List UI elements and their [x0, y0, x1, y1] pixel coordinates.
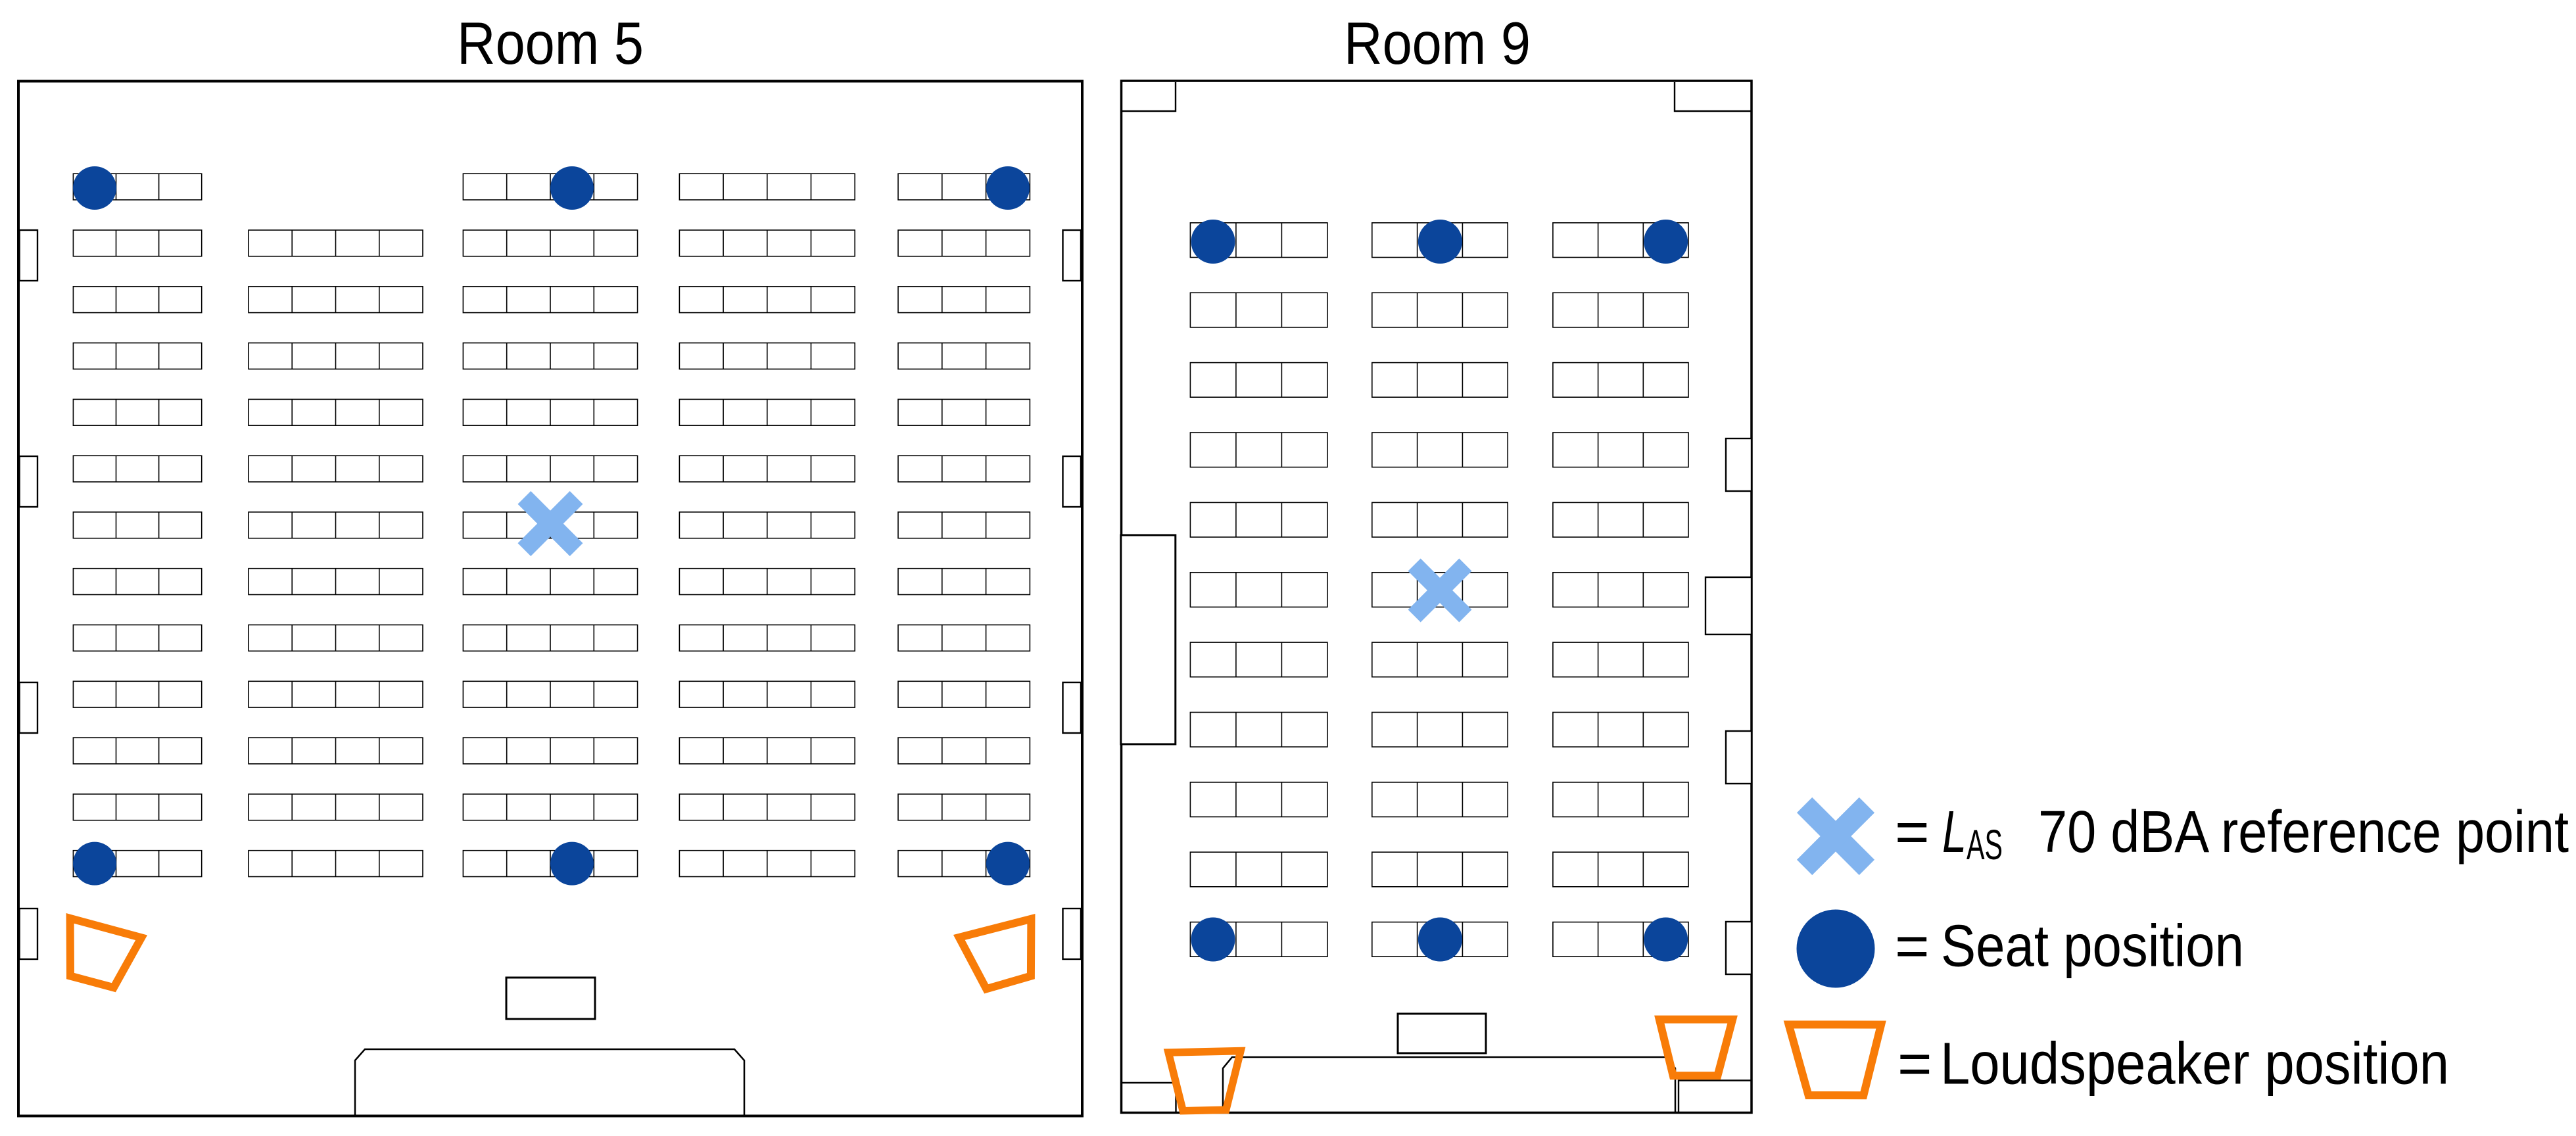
svg-text:70 dBA reference point: 70 dBA reference point [2038, 799, 2569, 865]
svg-text:L: L [1942, 799, 1967, 865]
svg-text:Seat position: Seat position [1941, 914, 2244, 980]
svg-text:AS: AS [1967, 821, 2003, 868]
svg-text:=: = [1895, 799, 1930, 865]
svg-text:Room 5: Room 5 [457, 11, 644, 77]
svg-text:=: = [1895, 914, 1930, 980]
svg-text:Loudspeaker position: Loudspeaker position [1940, 1031, 2449, 1097]
svg-text:Room 9: Room 9 [1344, 11, 1531, 77]
svg-text:=: = [1897, 1031, 1932, 1097]
